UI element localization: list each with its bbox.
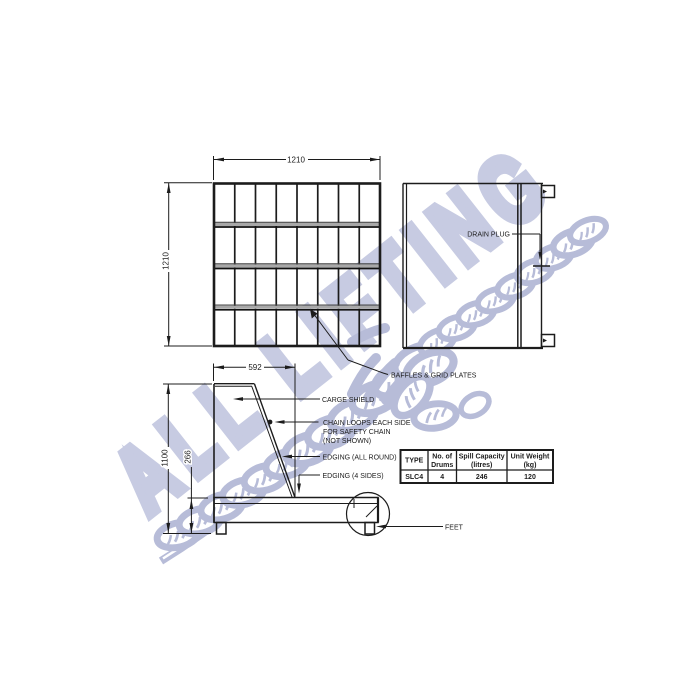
svg-text:(kg): (kg) [524,462,537,469]
svg-text:1210: 1210 [287,156,305,165]
svg-text:Drums: Drums [431,462,453,469]
svg-text:SLC4: SLC4 [405,474,423,481]
svg-text:266: 266 [184,450,193,464]
svg-text:EDGING (ALL ROUND): EDGING (ALL ROUND) [323,455,397,462]
svg-text:BAFFLES & GRID PLATES: BAFFLES & GRID PLATES [391,373,477,380]
svg-text:No. of: No. of [432,454,452,461]
svg-text:(NOT SHOWN): (NOT SHOWN) [323,438,371,445]
svg-text:246: 246 [476,474,488,481]
svg-text:1100: 1100 [161,449,170,467]
svg-text:592: 592 [248,363,262,372]
svg-text:TYPE: TYPE [405,458,424,465]
svg-text:DRAIN PLUG: DRAIN PLUG [467,232,510,239]
svg-text:120: 120 [524,474,536,481]
svg-text:FOR SAFETY CHAIN: FOR SAFETY CHAIN [323,429,391,436]
svg-text:CARGE SHIELD: CARGE SHIELD [322,397,374,404]
svg-text:CHAIN LOOPS EACH SIDE: CHAIN LOOPS EACH SIDE [323,420,411,427]
svg-text:1210: 1210 [162,252,171,270]
svg-text:Spill Capacity: Spill Capacity [459,454,505,461]
svg-text:(litres): (litres) [471,462,492,469]
svg-text:4: 4 [440,474,444,481]
svg-text:EDGING (4 SIDES): EDGING (4 SIDES) [323,473,384,480]
svg-text:Unit Weight: Unit Weight [511,454,550,461]
svg-text:FEET: FEET [445,525,464,532]
